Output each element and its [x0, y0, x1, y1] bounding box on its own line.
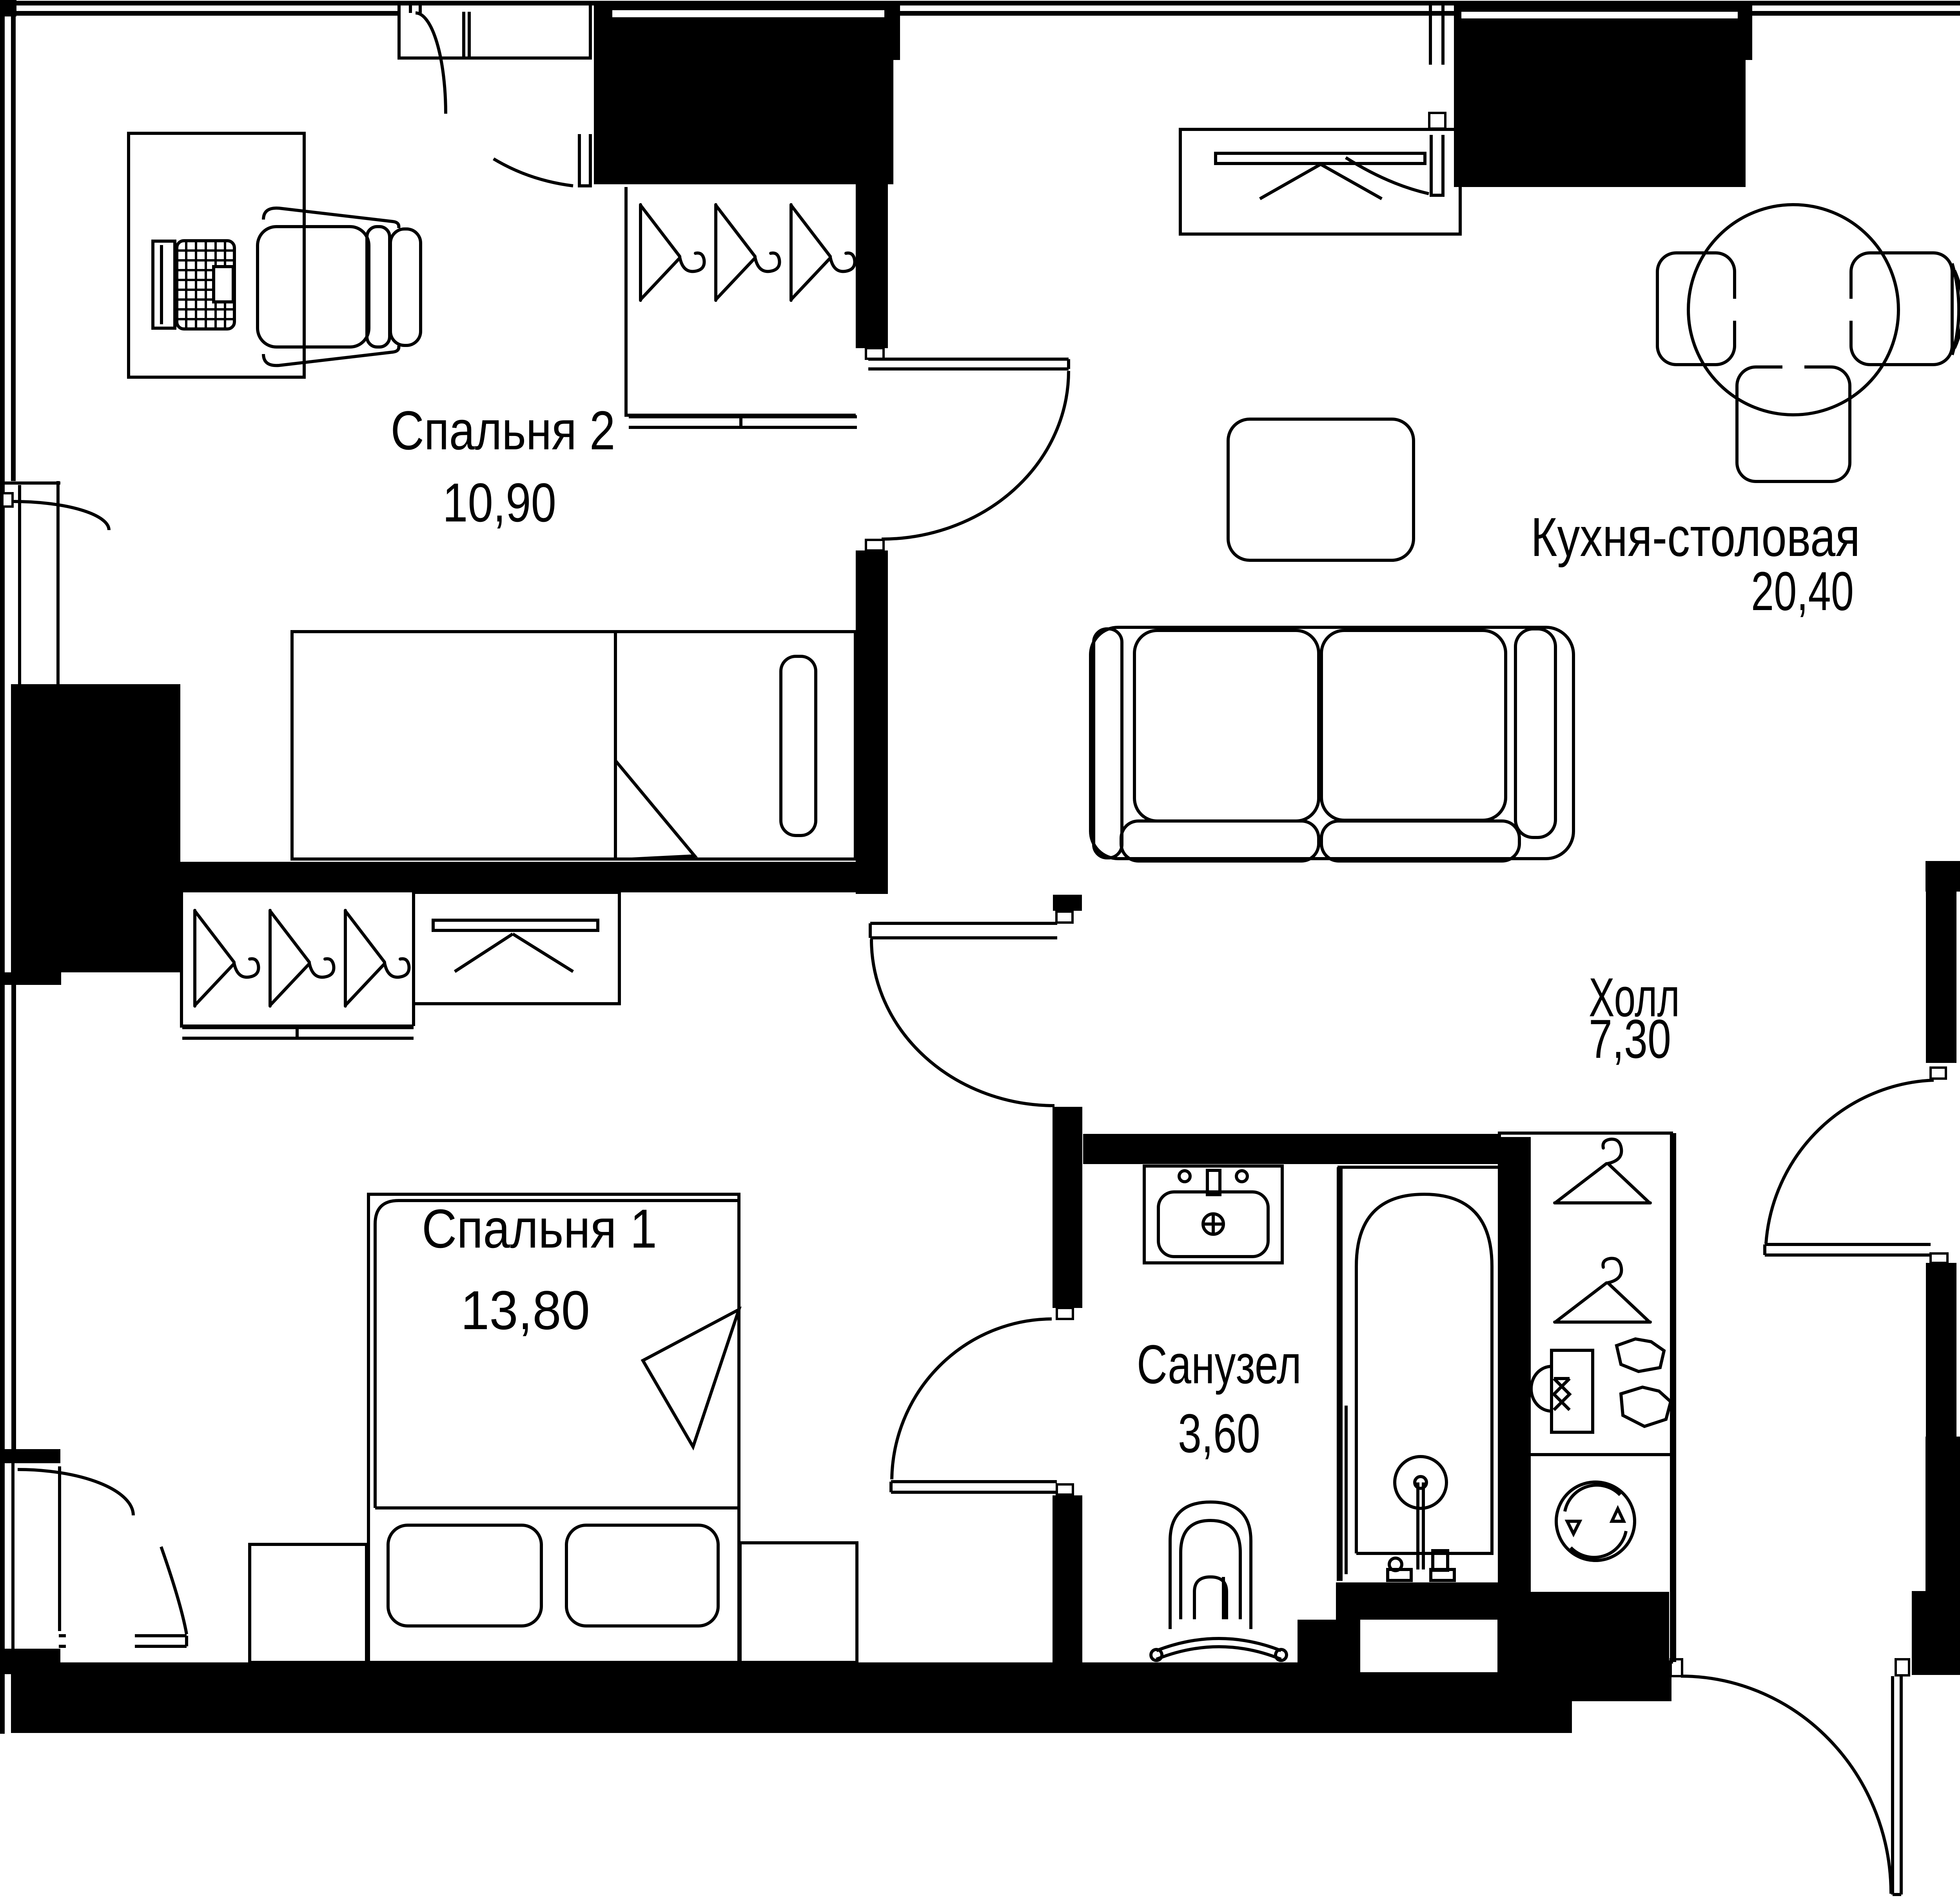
- svg-text:Спальня 1: Спальня 1: [422, 1198, 657, 1259]
- svg-text:3,60: 3,60: [1178, 1402, 1260, 1464]
- svg-text:Кухня-столовая: Кухня-столовая: [1531, 506, 1860, 568]
- svg-text:10,90: 10,90: [443, 472, 556, 533]
- svg-text:7,30: 7,30: [1589, 1008, 1671, 1070]
- svg-text:20,40: 20,40: [1751, 560, 1854, 622]
- svg-text:Санузел: Санузел: [1137, 1333, 1301, 1395]
- svg-text:Спальня 2: Спальня 2: [391, 400, 615, 461]
- svg-text:13,80: 13,80: [461, 1279, 590, 1341]
